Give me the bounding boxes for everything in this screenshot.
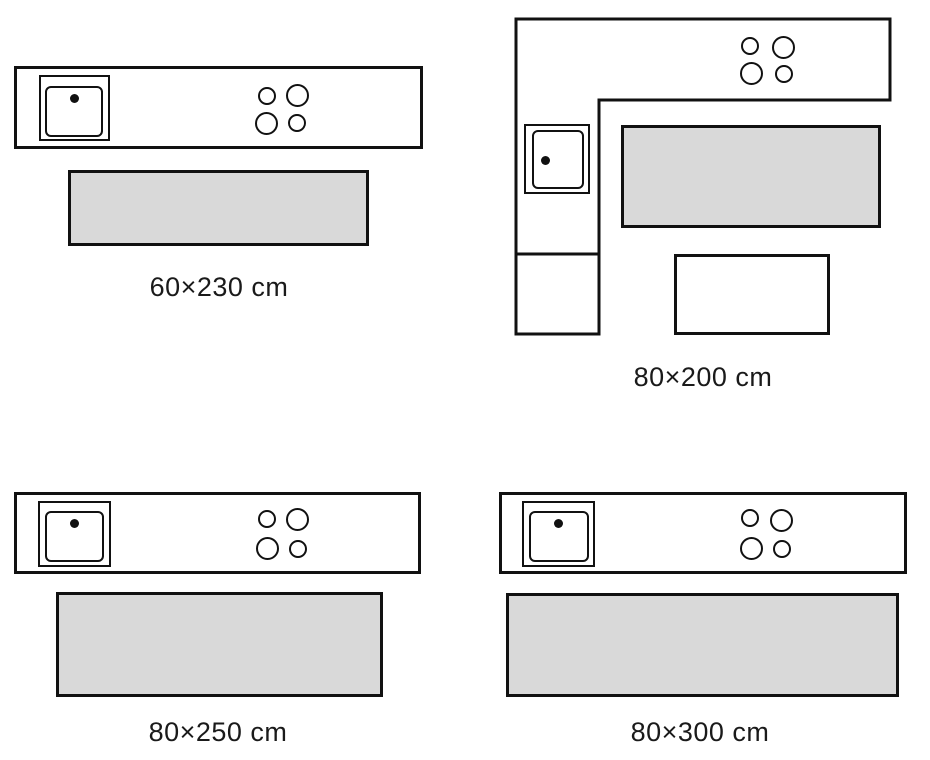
burner-icon [740,537,763,560]
sink-icon [39,75,110,141]
sink-basin [529,511,589,562]
diagram-80x250: 80×250 cm [0,0,930,760]
burner-icon [741,37,759,55]
rug-outline-gray [68,170,369,246]
burner-icon [741,509,759,527]
rug-size-diagram-sheet: 60×230 cm 80×200 cm 80×250 cm [0,0,930,760]
size-label: 80×250 cm [88,717,348,747]
faucet-dot-icon [70,94,79,103]
rug-outline-gray [621,125,881,228]
kitchen-counter [14,66,423,149]
kitchen-counter [14,492,421,574]
burner-icon [289,540,307,558]
sink-basin [45,86,103,137]
diagram-80x300: 80×300 cm [0,0,930,760]
burner-icon [286,84,309,107]
sink-icon [524,124,590,194]
l-shaped-counter-outline [516,19,890,334]
sink-basin [532,130,584,189]
faucet-dot-icon [70,519,79,528]
burner-icon [775,65,793,83]
faucet-dot-icon [541,156,550,165]
kitchen-counter [499,492,907,574]
size-label: 80×300 cm [570,717,830,747]
rug-outline-gray [506,593,899,697]
size-label: 60×230 cm [89,272,349,302]
burner-icon [258,87,276,105]
burner-icon [286,508,309,531]
rug-outline-white [674,254,830,335]
l-shaped-counter [514,17,894,337]
burner-icon [772,36,795,59]
sink-icon [38,501,111,567]
burner-icon [288,114,306,132]
burner-icon [255,112,278,135]
rug-outline-gray [56,592,383,697]
diagram-80x200: 80×200 cm [0,0,930,760]
burner-icon [740,62,763,85]
burner-icon [256,537,279,560]
size-label: 80×200 cm [573,362,833,392]
sink-icon [522,501,595,567]
faucet-dot-icon [554,519,563,528]
sink-basin [45,511,104,562]
burner-icon [773,540,791,558]
burner-icon [770,509,793,532]
burner-icon [258,510,276,528]
diagram-60x230: 60×230 cm [0,0,930,760]
